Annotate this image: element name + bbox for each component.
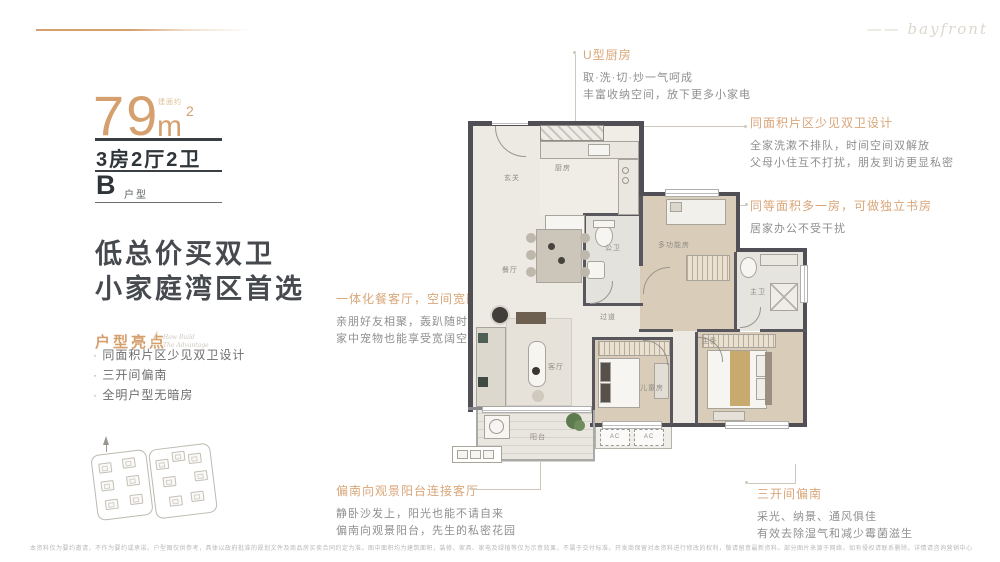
- label-entry: 玄关: [504, 173, 520, 183]
- plant: [574, 420, 585, 431]
- leader-balcony-dot: [470, 487, 473, 490]
- siteplan-plot-left: [90, 449, 154, 521]
- leader-balcony-h: [472, 489, 540, 490]
- building-footprint: [100, 480, 114, 492]
- annotation-kitchen-title: U型厨房: [583, 46, 813, 63]
- door-opening: [492, 121, 528, 125]
- area-superscript: 2: [186, 104, 194, 118]
- pillow: [600, 362, 611, 382]
- brand-script: —— bayfront: [867, 20, 988, 38]
- label-kitchen: 厨房: [555, 163, 571, 173]
- pillow: [670, 202, 682, 212]
- ac-fan: [489, 419, 504, 434]
- pouf: [532, 390, 544, 402]
- label-master: 主卧: [702, 336, 718, 346]
- window: [602, 421, 662, 429]
- side-table: [490, 305, 510, 325]
- equipment: [483, 450, 494, 459]
- label-master-bath: 主卫: [750, 287, 766, 297]
- leader-kitchen-dot: [573, 51, 576, 54]
- wall: [468, 121, 473, 412]
- bath-vanity: [760, 254, 798, 266]
- chair: [526, 267, 536, 277]
- bench: [713, 411, 745, 421]
- wall: [736, 192, 740, 252]
- north-arrow-icon: [100, 436, 112, 452]
- leader-south-dot: [745, 481, 748, 484]
- building-footprint: [98, 462, 112, 474]
- kitchen-counter: [618, 159, 639, 215]
- building-footprint: [126, 475, 140, 487]
- chair: [580, 250, 590, 260]
- annotation-kitchen: U型厨房 取·洗·切·炒一气呵成 丰富收纳空间，放下更多小家电: [583, 46, 813, 104]
- chair: [526, 233, 536, 243]
- ac-box-2: AC: [634, 429, 664, 446]
- disclaimer-text: 本资料仅为要约邀请，不作为要约或承诺。户型图仅供参考，具体以政府批准的规划文件及…: [30, 543, 972, 552]
- dining-table: [536, 229, 582, 283]
- equipment: [457, 450, 468, 459]
- siteplan-plot-right: [148, 442, 218, 519]
- building-footprint: [188, 453, 202, 465]
- leader-south-h: [748, 483, 795, 484]
- highlight-bullets: 同面积片区少见双卫设计 三开间偏南 全明户型无暗房: [93, 345, 245, 405]
- floorplan: AC AC 玄关 厨房 餐厅 公卫 多功能房 主卫 过道 客厅 儿童房 主卧 阳…: [440, 115, 812, 467]
- leader-south-v: [795, 464, 796, 484]
- bullet-3: 全明户型无暗房: [93, 385, 245, 405]
- building-footprint: [122, 457, 136, 469]
- wall: [670, 337, 673, 425]
- toilet-tank: [593, 220, 615, 228]
- annotation-south-title: 三开间偏南: [757, 485, 987, 502]
- kids-desk: [654, 363, 669, 399]
- equipment: [470, 450, 481, 459]
- headline: 低总价买双卫 小家庭湾区首选: [95, 237, 305, 307]
- wall: [639, 196, 643, 266]
- tableware: [558, 257, 565, 264]
- label-dining: 餐厅: [502, 265, 518, 275]
- annotation-balcony-line2: 偏南向观景阳台，先生的私密花园: [336, 523, 566, 540]
- chair: [580, 233, 590, 243]
- annotation-balcony-title: 偏南向观景阳台连接客厅: [336, 482, 566, 499]
- wall: [736, 248, 807, 252]
- sofa-pillow: [478, 333, 488, 343]
- label-guest-bath: 公卫: [605, 243, 621, 253]
- wardrobe: [686, 255, 730, 281]
- building-footprint: [190, 491, 204, 503]
- coffee-table: [528, 341, 546, 387]
- wall: [760, 329, 807, 332]
- poster-canvas: —— bayfront 79 建面约 m 2 3房2厅2卫 B 户型 低总价买双…: [0, 0, 1000, 562]
- bullet-2: 三开间偏南: [93, 365, 245, 385]
- kitchen-flue: [540, 125, 604, 141]
- area-note: 建面约: [158, 97, 182, 107]
- window: [800, 265, 808, 303]
- building-footprint: [171, 451, 185, 463]
- wall: [592, 337, 673, 340]
- layout-spec: 3房2厅2卫: [96, 143, 201, 172]
- kettle: [532, 367, 540, 375]
- headline-line1: 低总价买双卫: [95, 237, 305, 272]
- label-corridor: 过道: [600, 312, 616, 322]
- pillow: [600, 383, 611, 403]
- bullet-1: 同面积片区少见双卫设计: [93, 345, 245, 365]
- building-footprint: [155, 459, 169, 471]
- leader-kitchen: [575, 54, 576, 124]
- label-multi: 多功能房: [658, 240, 690, 250]
- balcony-rail: [593, 410, 595, 460]
- area-number: 79: [93, 88, 159, 144]
- divider-1: [95, 138, 222, 141]
- building-footprint: [162, 476, 176, 488]
- headboard: [765, 352, 772, 405]
- annotation-balcony-line1: 静卧沙发上，阳光也能不请自来: [336, 506, 566, 523]
- divider-3: [95, 202, 222, 203]
- chair: [580, 267, 590, 277]
- annotation-south-line2: 有效去除湿气和减少霉菌滋生: [757, 526, 987, 543]
- unit-type-letter: B: [96, 172, 116, 199]
- balcony-slider-window: [482, 406, 592, 413]
- label-kids: 儿童房: [640, 383, 664, 393]
- stove-burner: [622, 177, 629, 184]
- unit-type-label: 户型: [124, 186, 148, 201]
- tv-console: [516, 312, 546, 324]
- kitchen-sink: [588, 144, 610, 156]
- toilet: [740, 257, 757, 278]
- window: [725, 421, 789, 429]
- building-footprint: [194, 470, 208, 482]
- annotation-kitchen-line1: 取·洗·切·炒一气呵成: [583, 70, 813, 87]
- label-living: 客厅: [548, 362, 564, 372]
- shower: [770, 283, 798, 311]
- headline-line2: 小家庭湾区首选: [95, 272, 305, 307]
- building-footprint: [169, 495, 183, 507]
- ac-box-1: AC: [600, 429, 630, 446]
- window: [665, 189, 719, 197]
- annotation-south: 三开间偏南 采光、纳景、通风俱佳 有效去除湿气和减少霉菌滋生: [757, 485, 987, 543]
- script-text: bayfront: [908, 20, 988, 38]
- dash: ——: [867, 20, 901, 38]
- wall: [639, 121, 644, 196]
- wall: [734, 252, 737, 332]
- annotation-balcony: 偏南向观景阳台连接客厅 静卧沙发上，阳光也能不请自来 偏南向观景阳台，先生的私密…: [336, 482, 566, 540]
- tableware: [548, 243, 555, 250]
- building-footprint: [105, 499, 119, 511]
- bed-runner: [730, 351, 750, 406]
- chair: [526, 250, 536, 260]
- annotation-kitchen-line2: 丰富收纳空间，放下更多小家电: [583, 87, 813, 104]
- sofa-pillow: [478, 377, 488, 387]
- building-footprint: [129, 494, 143, 506]
- stove-burner: [622, 167, 629, 174]
- annotation-south-line1: 采光、纳景、通风俱佳: [757, 509, 987, 526]
- accent-line: [36, 29, 251, 31]
- wall: [639, 329, 673, 332]
- label-balcony: 阳台: [530, 432, 546, 442]
- highlights-script-line1: How Build: [163, 334, 209, 342]
